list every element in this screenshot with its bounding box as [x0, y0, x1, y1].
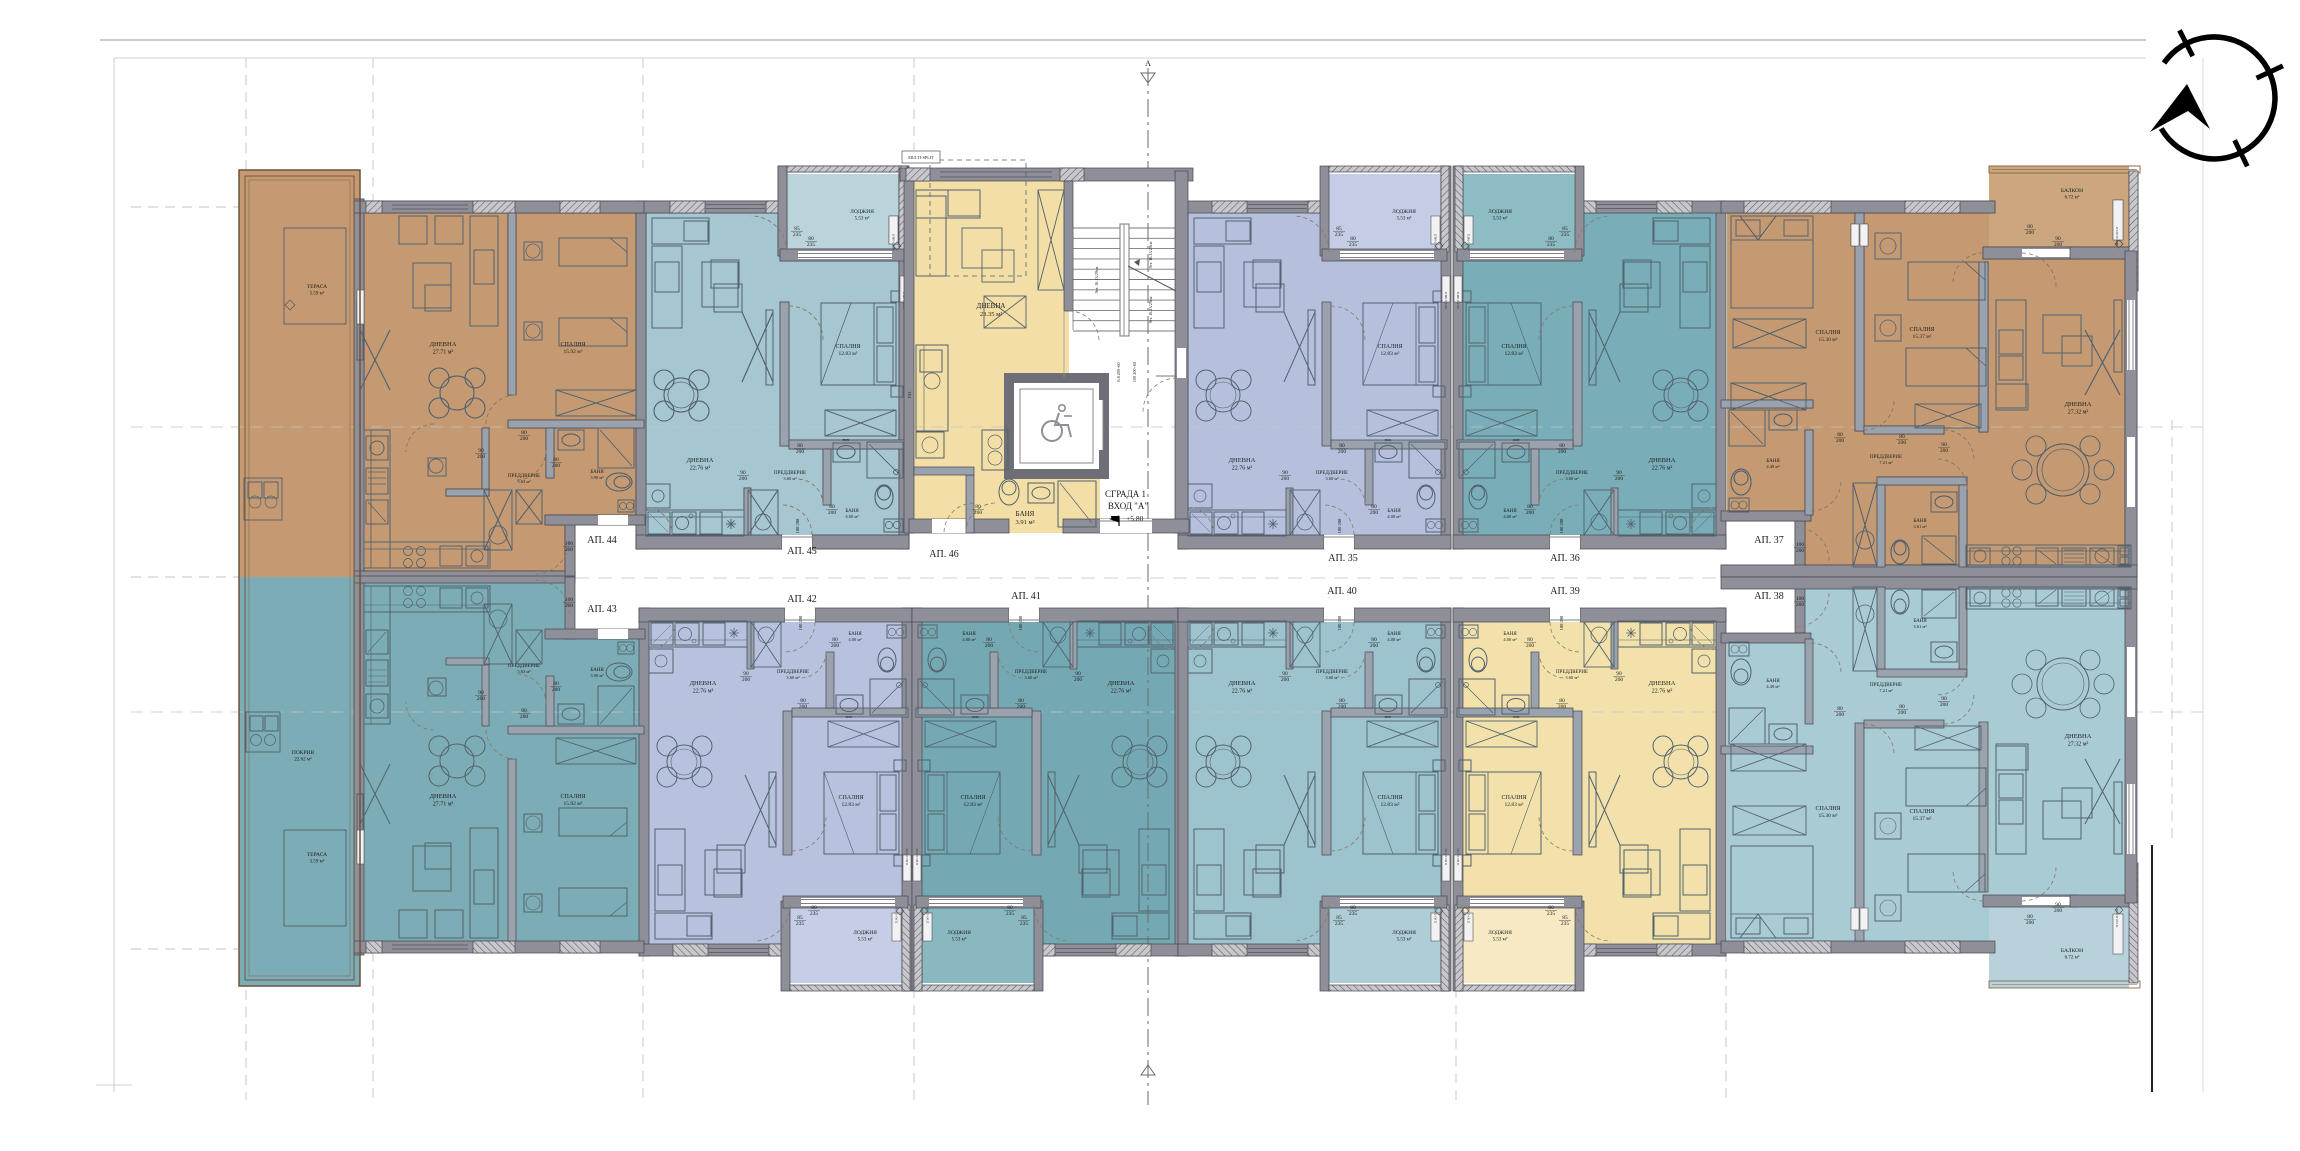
- svg-text:ЛОДЖИЯ: ЛОДЖИЯ: [1392, 209, 1416, 215]
- svg-text:АП. 41: АП. 41: [1011, 591, 1040, 602]
- svg-text:3.60 м²: 3.60 м²: [1565, 476, 1579, 481]
- svg-text:235: 235: [807, 242, 816, 248]
- svg-text:200: 200: [1526, 510, 1535, 516]
- svg-text:6.72 м²: 6.72 м²: [2065, 955, 2080, 961]
- svg-text:200: 200: [552, 463, 561, 469]
- svg-text:6.72 м²: 6.72 м²: [2065, 195, 2080, 201]
- svg-text:MULTI-SPLIT: MULTI-SPLIT: [908, 155, 934, 160]
- svg-text:12.83 м²: 12.83 м²: [1381, 802, 1400, 808]
- svg-text:БАЛКОН: БАЛКОН: [2061, 188, 2083, 194]
- svg-text:ДНЕВНА: ДНЕВНА: [1649, 680, 1676, 687]
- svg-text:100 200: 100 200: [795, 518, 800, 533]
- svg-text:200: 200: [799, 704, 808, 710]
- svg-text:ДНЕВНА: ДНЕВНА: [430, 793, 457, 800]
- svg-text:3.91 м²: 3.91 м²: [1015, 519, 1034, 526]
- svg-text:235: 235: [796, 921, 805, 927]
- svg-text:200: 200: [565, 547, 574, 553]
- svg-text:ДНЕВНА: ДНЕВНА: [1649, 457, 1676, 464]
- svg-text:200: 200: [1281, 677, 1290, 683]
- svg-text:200: 200: [2054, 908, 2063, 914]
- svg-text:АП. 36: АП. 36: [1550, 553, 1579, 564]
- svg-text:ДНЕВНА: ДНЕВНА: [1229, 680, 1256, 687]
- svg-text:ЛОДЖИЯ: ЛОДЖИЯ: [850, 209, 874, 215]
- svg-text:100 200: 100 200: [1337, 518, 1342, 533]
- svg-text:АП. 44: АП. 44: [587, 535, 616, 546]
- svg-text:ЛОДЖИЯ: ЛОДЖИЯ: [1488, 209, 1512, 215]
- svg-text:100 200: 100 200: [798, 615, 803, 630]
- svg-text:3.60 м²: 3.60 м²: [783, 476, 797, 481]
- svg-text:СПАЛНЯ: СПАЛНЯ: [1909, 327, 1934, 333]
- svg-text:ЛОДЖИЯ: ЛОДЖИЯ: [947, 930, 971, 936]
- svg-text:200: 200: [974, 510, 983, 516]
- svg-text:200: 200: [2026, 920, 2035, 926]
- svg-text:АП. 39: АП. 39: [1550, 586, 1579, 597]
- svg-text:БАЛКОН: БАЛКОН: [2061, 948, 2083, 954]
- svg-text:235: 235: [1547, 911, 1556, 917]
- svg-text:5.53 м²: 5.53 м²: [858, 937, 873, 943]
- svg-text:235: 235: [1349, 242, 1358, 248]
- svg-text:5.53 м²: 5.53 м²: [1397, 937, 1412, 943]
- svg-text:235: 235: [793, 232, 802, 238]
- svg-text:3.60 м²: 3.60 м²: [1024, 675, 1038, 680]
- svg-text:200: 200: [828, 510, 837, 516]
- svg-text:200: 200: [1796, 602, 1805, 608]
- svg-text:200: 200: [1017, 704, 1026, 710]
- svg-text:15.92 м²: 15.92 м²: [564, 801, 583, 807]
- svg-text:12.83 м²: 12.83 м²: [1505, 802, 1524, 808]
- svg-text:235: 235: [1335, 232, 1344, 238]
- svg-text:3.60 м²: 3.60 м²: [1325, 675, 1339, 680]
- svg-text:200: 200: [1558, 449, 1567, 455]
- svg-text:235: 235: [1020, 921, 1029, 927]
- svg-text:СПАЛНЯ: СПАЛНЯ: [1501, 795, 1526, 801]
- svg-text:100 200+60: 100 200+60: [1132, 362, 1137, 382]
- svg-text:БАНЯ: БАНЯ: [1016, 510, 1035, 518]
- svg-text:200: 200: [1836, 438, 1845, 444]
- svg-text:200: 200: [1558, 704, 1567, 710]
- svg-text:200: 200: [1526, 643, 1535, 649]
- svg-text:200: 200: [1370, 510, 1379, 516]
- svg-text:200: 200: [831, 643, 840, 649]
- svg-text:9ст. 16.13/29см: 9ст. 16.13/29см: [1148, 296, 1153, 323]
- svg-text:ДНЕВНА: ДНЕВНА: [690, 680, 717, 687]
- svg-text:22.76 м²: 22.76 м²: [1652, 466, 1673, 472]
- svg-text:7.21 м²: 7.21 м²: [1879, 688, 1893, 693]
- svg-text:7.21 м²: 7.21 м²: [1879, 460, 1893, 465]
- svg-text:22.76 м²: 22.76 м²: [1232, 689, 1253, 695]
- svg-text:200: 200: [1281, 476, 1290, 482]
- svg-text:200: 200: [1898, 440, 1907, 446]
- svg-text:СПАЛНЯ: СПАЛНЯ: [1815, 806, 1840, 812]
- svg-text:200: 200: [2054, 242, 2063, 248]
- svg-text:4.00 м²: 4.00 м²: [1387, 637, 1401, 642]
- svg-text:200: 200: [477, 696, 486, 702]
- svg-text:АП. 43: АП. 43: [587, 604, 616, 615]
- svg-text:3.59 м²: 3.59 м²: [310, 859, 325, 865]
- svg-text:ДНЕВНА: ДНЕВНА: [1108, 680, 1135, 687]
- svg-text:5.53 м²: 5.53 м²: [1493, 937, 1508, 943]
- svg-text:12.83 м²: 12.83 м²: [1505, 351, 1524, 357]
- svg-text:СПАЛНЯ: СПАЛНЯ: [960, 795, 985, 801]
- svg-text:5.59 м²: 5.59 м²: [310, 291, 325, 297]
- svg-text:23.35 м²: 23.35 м²: [980, 311, 1002, 318]
- svg-text:27.71 м²: 27.71 м²: [433, 350, 454, 356]
- svg-text:СПАЛНЯ: СПАЛНЯ: [1815, 330, 1840, 336]
- svg-text:СПАЛНЯ: СПАЛНЯ: [560, 794, 585, 800]
- svg-text:СПАЛНЯ: СПАЛНЯ: [1501, 344, 1526, 350]
- svg-text:СПАЛНЯ: СПАЛНЯ: [1377, 795, 1402, 801]
- svg-text:100 200: 100 200: [1337, 615, 1342, 630]
- svg-text:3.61 м²: 3.61 м²: [1913, 524, 1927, 529]
- svg-text:ДНЕВНА: ДНЕВНА: [977, 302, 1006, 310]
- svg-text:ДНЕВНА: ДНЕВНА: [687, 457, 714, 464]
- svg-text:22.76 м²: 22.76 м²: [1232, 466, 1253, 472]
- svg-text:200: 200: [742, 677, 751, 683]
- svg-text:СПАЛНЯ: СПАЛНЯ: [835, 344, 860, 350]
- svg-text:СПАЛНЯ: СПАЛНЯ: [560, 342, 585, 348]
- svg-text:15.92 м²: 15.92 м²: [564, 349, 583, 355]
- svg-text:ГАЗ: ГАЗ: [907, 392, 912, 399]
- svg-text:3.60 м²: 3.60 м²: [1325, 476, 1339, 481]
- svg-text:200: 200: [1836, 712, 1845, 718]
- svg-text:+5.80: +5.80: [1126, 514, 1144, 523]
- svg-text:3.61 м²: 3.61 м²: [1913, 624, 1927, 629]
- svg-text:200: 200: [739, 476, 748, 482]
- svg-text:200: 200: [552, 687, 561, 693]
- svg-text:22.76 м²: 22.76 м²: [1111, 689, 1132, 695]
- svg-text:АП. 40: АП. 40: [1327, 586, 1356, 597]
- svg-text:9ст. 16.13/29см: 9ст. 16.13/29см: [1148, 241, 1153, 268]
- svg-text:АП. 38: АП. 38: [1754, 591, 1783, 602]
- svg-text:235: 235: [1006, 911, 1015, 917]
- svg-text:ЛОДЖИЯ: ЛОДЖИЯ: [1488, 930, 1512, 936]
- svg-text:СГРАДА 1: СГРАДА 1: [1105, 489, 1146, 499]
- svg-text:100 200: 100 200: [1018, 615, 1023, 630]
- svg-text:235: 235: [1561, 921, 1570, 927]
- svg-text:100 200: 100 200: [1559, 518, 1564, 533]
- svg-text:200: 200: [520, 436, 529, 442]
- svg-text:235: 235: [810, 911, 819, 917]
- svg-text:АП. 46: АП. 46: [929, 549, 958, 560]
- svg-text:27.71 м²: 27.71 м²: [433, 802, 454, 808]
- svg-text:22.76 м²: 22.76 м²: [1652, 689, 1673, 695]
- svg-text:ДНЕВНА: ДНЕВНА: [2065, 401, 2092, 408]
- svg-text:200: 200: [520, 714, 529, 720]
- svg-text:3.90 м²: 3.90 м²: [590, 673, 604, 678]
- svg-text:4.49 м²: 4.49 м²: [1766, 684, 1780, 689]
- svg-text:АП. 42: АП. 42: [787, 594, 816, 605]
- svg-text:9ст. 16.13/29см: 9ст. 16.13/29см: [1094, 266, 1099, 293]
- svg-text:4.00 м²: 4.00 м²: [848, 637, 862, 642]
- svg-text:АП. 37: АП. 37: [1754, 535, 1783, 546]
- svg-text:5.63 м²: 5.63 м²: [517, 479, 531, 484]
- svg-text:6.8 200+60: 6.8 200+60: [1116, 362, 1121, 381]
- svg-text:4.00 м²: 4.00 м²: [1503, 637, 1517, 642]
- svg-text:200: 200: [1940, 702, 1949, 708]
- svg-text:АП. 35: АП. 35: [1328, 553, 1357, 564]
- svg-text:4.00 м²: 4.00 м²: [845, 514, 859, 519]
- svg-text:200: 200: [477, 454, 486, 460]
- svg-text:22.62 м²: 22.62 м²: [294, 757, 312, 763]
- svg-text:22.76 м²: 22.76 м²: [690, 466, 711, 472]
- svg-text:200: 200: [565, 603, 574, 609]
- svg-text:200: 200: [796, 449, 805, 455]
- svg-text:5.63 м²: 5.63 м²: [517, 669, 531, 674]
- svg-text:4.00 м²: 4.00 м²: [1387, 514, 1401, 519]
- svg-text:5.53 м²: 5.53 м²: [1493, 216, 1508, 222]
- svg-text:15.30 м²: 15.30 м²: [1819, 337, 1838, 343]
- svg-text:5.53 м²: 5.53 м²: [952, 937, 967, 943]
- svg-text:15.37 м²: 15.37 м²: [1913, 816, 1932, 822]
- svg-text:4.00 м²: 4.00 м²: [1503, 514, 1517, 519]
- svg-text:235: 235: [1335, 921, 1344, 927]
- svg-text:235: 235: [1547, 242, 1556, 248]
- svg-text:3.90 м²: 3.90 м²: [590, 475, 604, 480]
- svg-text:200: 200: [1338, 704, 1347, 710]
- svg-text:3.60 м²: 3.60 м²: [786, 675, 800, 680]
- svg-text:ДНЕВНА: ДНЕВНА: [1229, 457, 1256, 464]
- svg-text:3.60 м²: 3.60 м²: [1565, 675, 1579, 680]
- svg-text:200: 200: [2026, 230, 2035, 236]
- svg-text:12.83 м²: 12.83 м²: [964, 802, 983, 808]
- svg-text:4.49 м²: 4.49 м²: [1766, 464, 1780, 469]
- svg-text:200: 200: [1796, 548, 1805, 554]
- svg-text:200: 200: [1898, 710, 1907, 716]
- svg-text:15.30 м²: 15.30 м²: [1819, 813, 1838, 819]
- svg-text:ТЕРАСА: ТЕРАСА: [307, 852, 327, 858]
- svg-text:12.83 м²: 12.83 м²: [839, 351, 858, 357]
- svg-text:ЛОДЖИЯ: ЛОДЖИЯ: [853, 930, 877, 936]
- svg-text:ЛОДЖИЯ: ЛОДЖИЯ: [1392, 930, 1416, 936]
- svg-text:27.32 м²: 27.32 м²: [2068, 742, 2089, 748]
- svg-text:СПАЛНЯ: СПАЛНЯ: [838, 795, 863, 801]
- svg-text:ДНЕВНА: ДНЕВНА: [2065, 733, 2092, 740]
- svg-text:200: 200: [1940, 448, 1949, 454]
- svg-text:4.00 м²: 4.00 м²: [962, 637, 976, 642]
- svg-text:12.83 м²: 12.83 м²: [842, 802, 861, 808]
- svg-text:АП. 45: АП. 45: [787, 546, 816, 557]
- svg-text:200: 200: [1370, 643, 1379, 649]
- svg-text:200: 200: [1074, 677, 1083, 683]
- svg-text:200: 200: [1615, 677, 1624, 683]
- svg-text:27.32 м²: 27.32 м²: [2068, 410, 2089, 416]
- svg-text:СПАЛНЯ: СПАЛНЯ: [1909, 809, 1934, 815]
- svg-text:235: 235: [1349, 911, 1358, 917]
- svg-text:200: 200: [985, 643, 994, 649]
- svg-text:15.37 м²: 15.37 м²: [1913, 334, 1932, 340]
- svg-text:СПАЛНЯ: СПАЛНЯ: [1377, 344, 1402, 350]
- svg-text:ВХОД "А": ВХОД "А": [1108, 501, 1148, 511]
- svg-text:100 200: 100 200: [1559, 615, 1564, 630]
- svg-text:235: 235: [1561, 232, 1570, 238]
- svg-text:ДНЕВНА: ДНЕВНА: [430, 341, 457, 348]
- svg-text:22.76 м²: 22.76 м²: [693, 689, 714, 695]
- svg-text:5.53 м²: 5.53 м²: [855, 216, 870, 222]
- svg-text:200: 200: [1615, 476, 1624, 482]
- svg-text:5.53 м²: 5.53 м²: [1397, 216, 1412, 222]
- svg-text:ПОКРИВ: ПОКРИВ: [292, 750, 315, 756]
- svg-text:200: 200: [1338, 449, 1347, 455]
- svg-text:A: A: [1145, 59, 1151, 68]
- svg-text:12.83 м²: 12.83 м²: [1381, 351, 1400, 357]
- svg-text:ТЕРАСА: ТЕРАСА: [307, 284, 327, 290]
